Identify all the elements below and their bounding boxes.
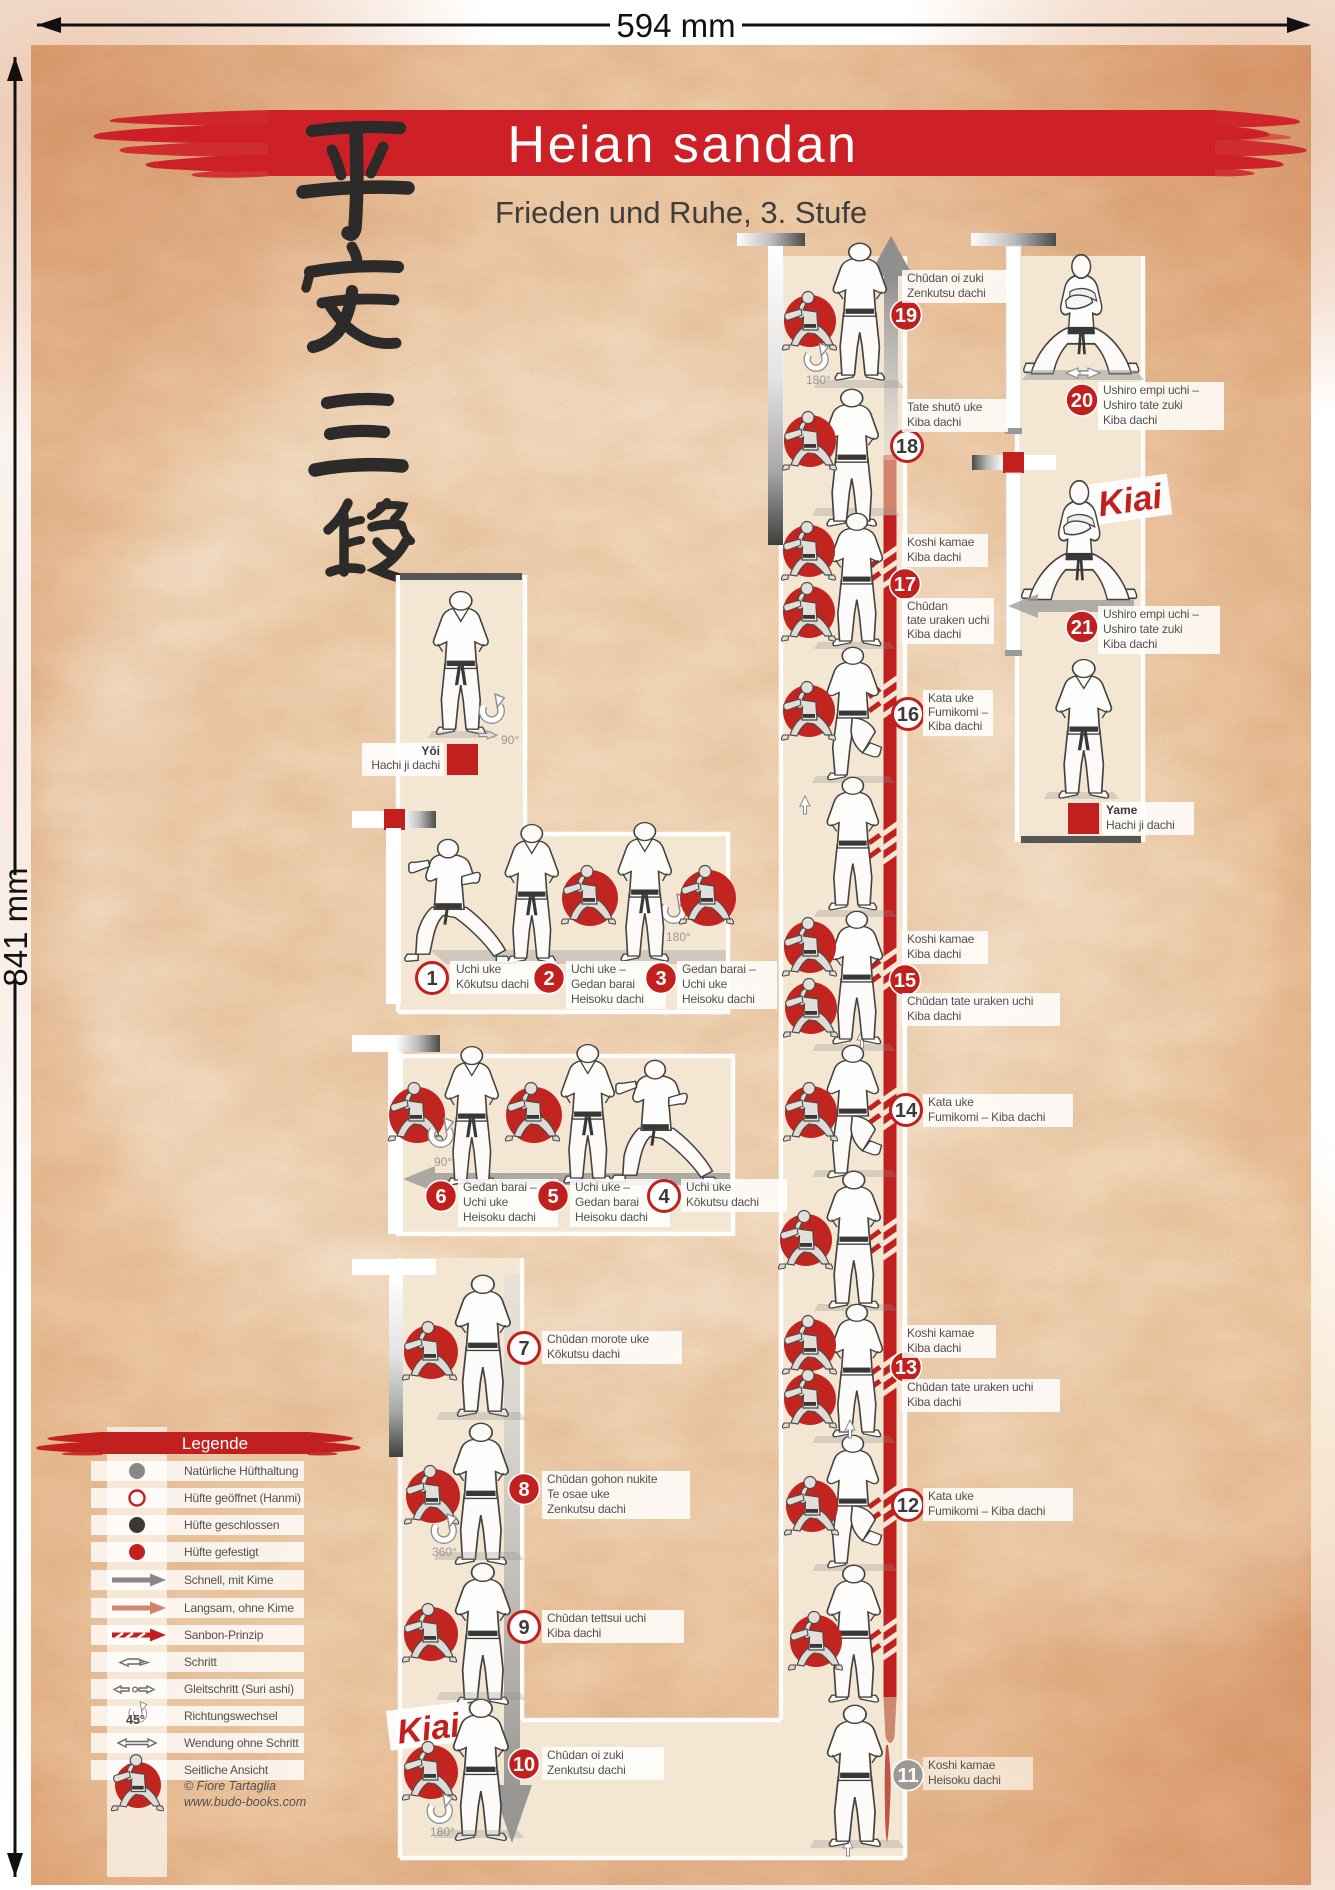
svg-text:Kiba dachi: Kiba dachi: [907, 550, 961, 564]
svg-text:Hüfte geöffnet (Hanmi): Hüfte geöffnet (Hanmi): [184, 1491, 301, 1505]
svg-text:Uchi uke –: Uchi uke –: [575, 1180, 630, 1194]
svg-text:Kiba dachi: Kiba dachi: [907, 1341, 961, 1355]
svg-text:Hachi ji dachi: Hachi ji dachi: [1106, 818, 1175, 832]
svg-text:www.budo-books.com: www.budo-books.com: [184, 1795, 306, 1809]
svg-text:Chūdan tate uraken uchi: Chūdan tate uraken uchi: [907, 994, 1033, 1008]
svg-text:Zenkutsu dachi: Zenkutsu dachi: [547, 1763, 626, 1777]
svg-text:841 mm: 841 mm: [0, 867, 34, 986]
svg-text:Ushiro tate zuki: Ushiro tate zuki: [1103, 398, 1183, 412]
svg-text:Koshi kamae: Koshi kamae: [907, 1326, 975, 1340]
svg-text:Kiba dachi: Kiba dachi: [907, 627, 961, 641]
svg-text:Wendung ohne Schritt: Wendung ohne Schritt: [184, 1736, 299, 1750]
svg-text:Ushiro tate zuki: Ushiro tate zuki: [1103, 622, 1183, 636]
svg-text:9: 9: [518, 1617, 529, 1639]
svg-text:15: 15: [894, 970, 916, 992]
svg-text:Gedan barai: Gedan barai: [575, 1195, 639, 1209]
svg-text:Natürliche Hüfthaltung: Natürliche Hüfthaltung: [184, 1464, 298, 1478]
svg-text:Te osae uke: Te osae uke: [547, 1487, 610, 1501]
svg-text:Fumikomi – Kiba dachi: Fumikomi – Kiba dachi: [928, 1504, 1045, 1518]
svg-text:Heisoku dachi: Heisoku dachi: [682, 992, 755, 1006]
svg-text:Heisoku dachi: Heisoku dachi: [928, 1773, 1001, 1787]
svg-text:5: 5: [547, 1186, 558, 1208]
svg-text:Koshi kamae: Koshi kamae: [907, 932, 975, 946]
svg-text:Chūdan: Chūdan: [907, 599, 948, 613]
svg-text:Uchi uke: Uchi uke: [463, 1195, 509, 1209]
svg-text:Heisoku dachi: Heisoku dachi: [463, 1210, 536, 1224]
svg-text:19: 19: [895, 305, 917, 327]
svg-text:18: 18: [896, 436, 918, 458]
svg-text:20: 20: [1071, 390, 1093, 412]
svg-text:Kiba dachi: Kiba dachi: [928, 719, 982, 733]
svg-text:Kōkutsu dachi: Kōkutsu dachi: [456, 977, 529, 991]
svg-text:Uchi uke: Uchi uke: [686, 1180, 732, 1194]
svg-text:Hüfte gefestigt: Hüfte gefestigt: [184, 1545, 259, 1559]
svg-text:Yame: Yame: [1106, 803, 1138, 817]
svg-text:11: 11: [897, 1765, 918, 1787]
svg-text:594 mm: 594 mm: [616, 7, 735, 44]
svg-text:180°: 180°: [806, 373, 831, 387]
svg-text:13: 13: [895, 1357, 917, 1379]
svg-text:3: 3: [655, 968, 666, 990]
svg-text:Sanbon-Prinzip: Sanbon-Prinzip: [184, 1628, 264, 1642]
svg-text:Chūdan gohon nukite: Chūdan gohon nukite: [547, 1472, 658, 1486]
svg-text:180°: 180°: [666, 930, 691, 944]
svg-text:Kiba dachi: Kiba dachi: [907, 415, 961, 429]
svg-text:Kōkutsu dachi: Kōkutsu dachi: [686, 1195, 759, 1209]
svg-text:90°: 90°: [434, 1155, 452, 1169]
svg-text:Ushiro empi uchi –: Ushiro empi uchi –: [1103, 607, 1199, 621]
svg-text:Kiba dachi: Kiba dachi: [1103, 413, 1157, 427]
svg-text:45°: 45°: [126, 1713, 145, 1727]
svg-text:Heian sandan: Heian sandan: [508, 116, 859, 174]
svg-text:Uchi uke: Uchi uke: [456, 962, 502, 976]
svg-text:Chūdan tettsui uchi: Chūdan tettsui uchi: [547, 1611, 646, 1625]
svg-text:Gleitschritt (Suri ashi): Gleitschritt (Suri ashi): [184, 1682, 294, 1696]
svg-text:Zenkutsu dachi: Zenkutsu dachi: [907, 286, 986, 300]
svg-text:Uchi uke –: Uchi uke –: [571, 962, 626, 976]
svg-text:90°: 90°: [501, 733, 519, 747]
svg-text:Schnell, mit Kime: Schnell, mit Kime: [184, 1573, 274, 1587]
svg-text:Zenkutsu dachi: Zenkutsu dachi: [547, 1502, 626, 1516]
svg-text:Gedan barai: Gedan barai: [571, 977, 635, 991]
svg-text:Langsam, ohne Kime: Langsam, ohne Kime: [184, 1601, 294, 1615]
svg-text:Fumikomi –: Fumikomi –: [928, 705, 989, 719]
svg-text:8: 8: [518, 1479, 529, 1501]
svg-text:Chūdan morote uke: Chūdan morote uke: [547, 1332, 650, 1346]
svg-text:4: 4: [658, 1186, 670, 1208]
svg-text:Hüfte geschlossen: Hüfte geschlossen: [184, 1518, 279, 1532]
svg-text:Hachi ji dachi: Hachi ji dachi: [371, 758, 440, 772]
svg-text:Kata uke: Kata uke: [928, 1489, 974, 1503]
svg-text:Kiba dachi: Kiba dachi: [1103, 637, 1157, 651]
svg-text:Tate shutō uke: Tate shutō uke: [907, 400, 983, 414]
svg-text:Kōkutsu dachi: Kōkutsu dachi: [547, 1347, 620, 1361]
svg-text:16: 16: [897, 704, 919, 726]
svg-text:10: 10: [513, 1754, 535, 1776]
svg-text:Kata uke: Kata uke: [928, 691, 974, 705]
svg-text:© Fiore Tartaglia: © Fiore Tartaglia: [184, 1779, 276, 1793]
svg-text:Ushiro empi uchi –: Ushiro empi uchi –: [1103, 383, 1199, 397]
svg-text:Frieden und Ruhe, 3. Stufe: Frieden und Ruhe, 3. Stufe: [495, 195, 867, 230]
svg-text:Chūdan oi zuki: Chūdan oi zuki: [547, 1748, 624, 1762]
svg-text:Yōi: Yōi: [421, 744, 440, 758]
svg-text:1: 1: [426, 968, 437, 990]
svg-text:12: 12: [897, 1495, 919, 1517]
svg-text:Schritt: Schritt: [184, 1655, 217, 1669]
svg-text:Fumikomi – Kiba dachi: Fumikomi – Kiba dachi: [928, 1110, 1045, 1124]
svg-text:Kata uke: Kata uke: [928, 1095, 974, 1109]
svg-text:Gedan barai –: Gedan barai –: [682, 962, 756, 976]
svg-text:2: 2: [543, 968, 554, 990]
svg-text:Heisoku dachi: Heisoku dachi: [575, 1210, 648, 1224]
svg-text:Kiba dachi: Kiba dachi: [907, 947, 961, 961]
svg-text:7: 7: [518, 1338, 529, 1360]
svg-text:Koshi kamae: Koshi kamae: [907, 535, 975, 549]
svg-text:Legende: Legende: [182, 1434, 248, 1453]
svg-text:Chūdan tate uraken uchi: Chūdan tate uraken uchi: [907, 1380, 1033, 1394]
svg-text:Kiba dachi: Kiba dachi: [547, 1626, 601, 1640]
svg-text:Richtungswechsel: Richtungswechsel: [184, 1709, 278, 1723]
svg-text:Uchi uke: Uchi uke: [682, 977, 728, 991]
svg-text:14: 14: [895, 1100, 918, 1122]
svg-text:Gedan barai –: Gedan barai –: [463, 1180, 537, 1194]
svg-text:6: 6: [435, 1186, 446, 1208]
svg-text:Kiba dachi: Kiba dachi: [907, 1395, 961, 1409]
svg-text:Koshi kamae: Koshi kamae: [928, 1758, 996, 1772]
svg-text:21: 21: [1071, 617, 1093, 639]
svg-text:tate uraken uchi: tate uraken uchi: [907, 613, 989, 627]
svg-text:Kiba dachi: Kiba dachi: [907, 1009, 961, 1023]
svg-text:Chūdan oi zuki: Chūdan oi zuki: [907, 271, 984, 285]
svg-text:17: 17: [894, 574, 916, 596]
svg-text:Heisoku dachi: Heisoku dachi: [571, 992, 644, 1006]
